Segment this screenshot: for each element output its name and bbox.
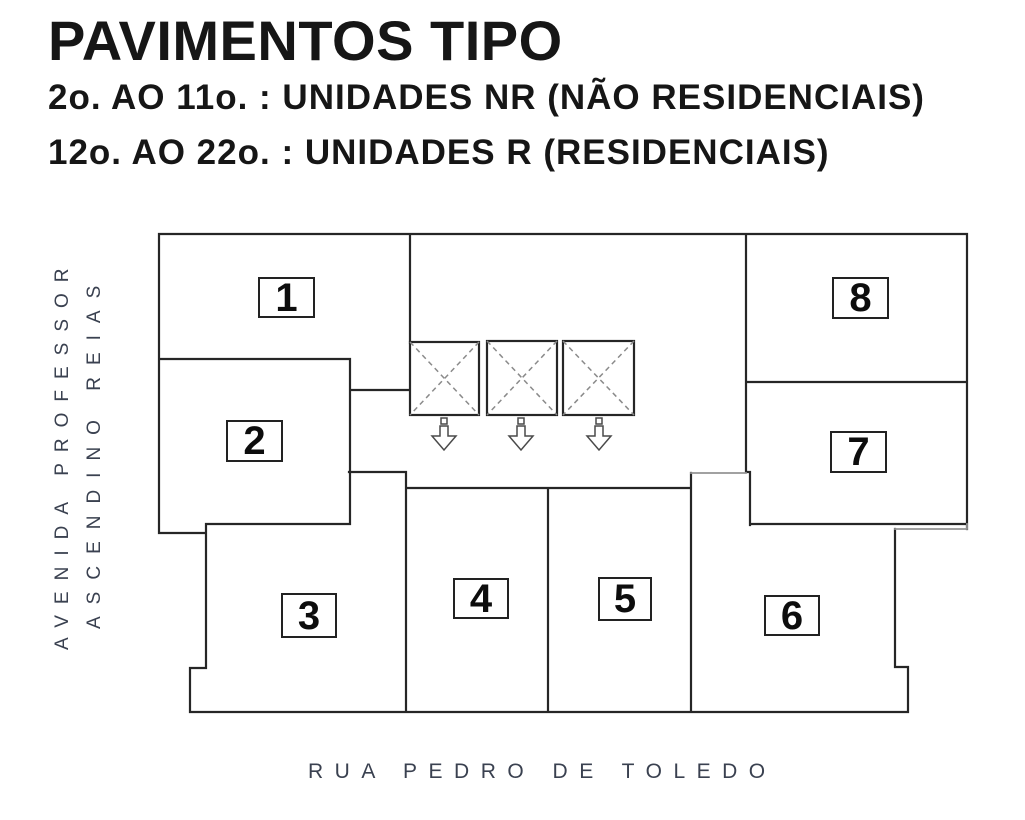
elevator-shaft-icon	[410, 342, 479, 415]
elevator-down-arrows	[432, 418, 611, 450]
unit-label-7: 7	[830, 431, 887, 473]
elevator-shaft-icon	[487, 341, 557, 415]
unit-label-6: 6	[764, 595, 820, 636]
floor-plan-drawing	[0, 0, 1025, 820]
unit-label-8: 8	[832, 277, 889, 319]
unit-label-3: 3	[281, 593, 337, 638]
down-arrow-icon	[432, 418, 456, 450]
page: { "header": { "title": "PAVIMENTOS TIPO"…	[0, 0, 1025, 820]
elevator-shaft-icon	[563, 341, 634, 415]
unit-label-2: 2	[226, 420, 283, 462]
unit-label-1: 1	[258, 277, 315, 318]
plan-walls-light	[691, 473, 967, 529]
unit-label-5: 5	[598, 577, 652, 621]
down-arrow-icon	[509, 418, 533, 450]
down-arrow-icon	[587, 418, 611, 450]
unit-label-4: 4	[453, 578, 509, 619]
elevator-shafts	[410, 341, 634, 415]
